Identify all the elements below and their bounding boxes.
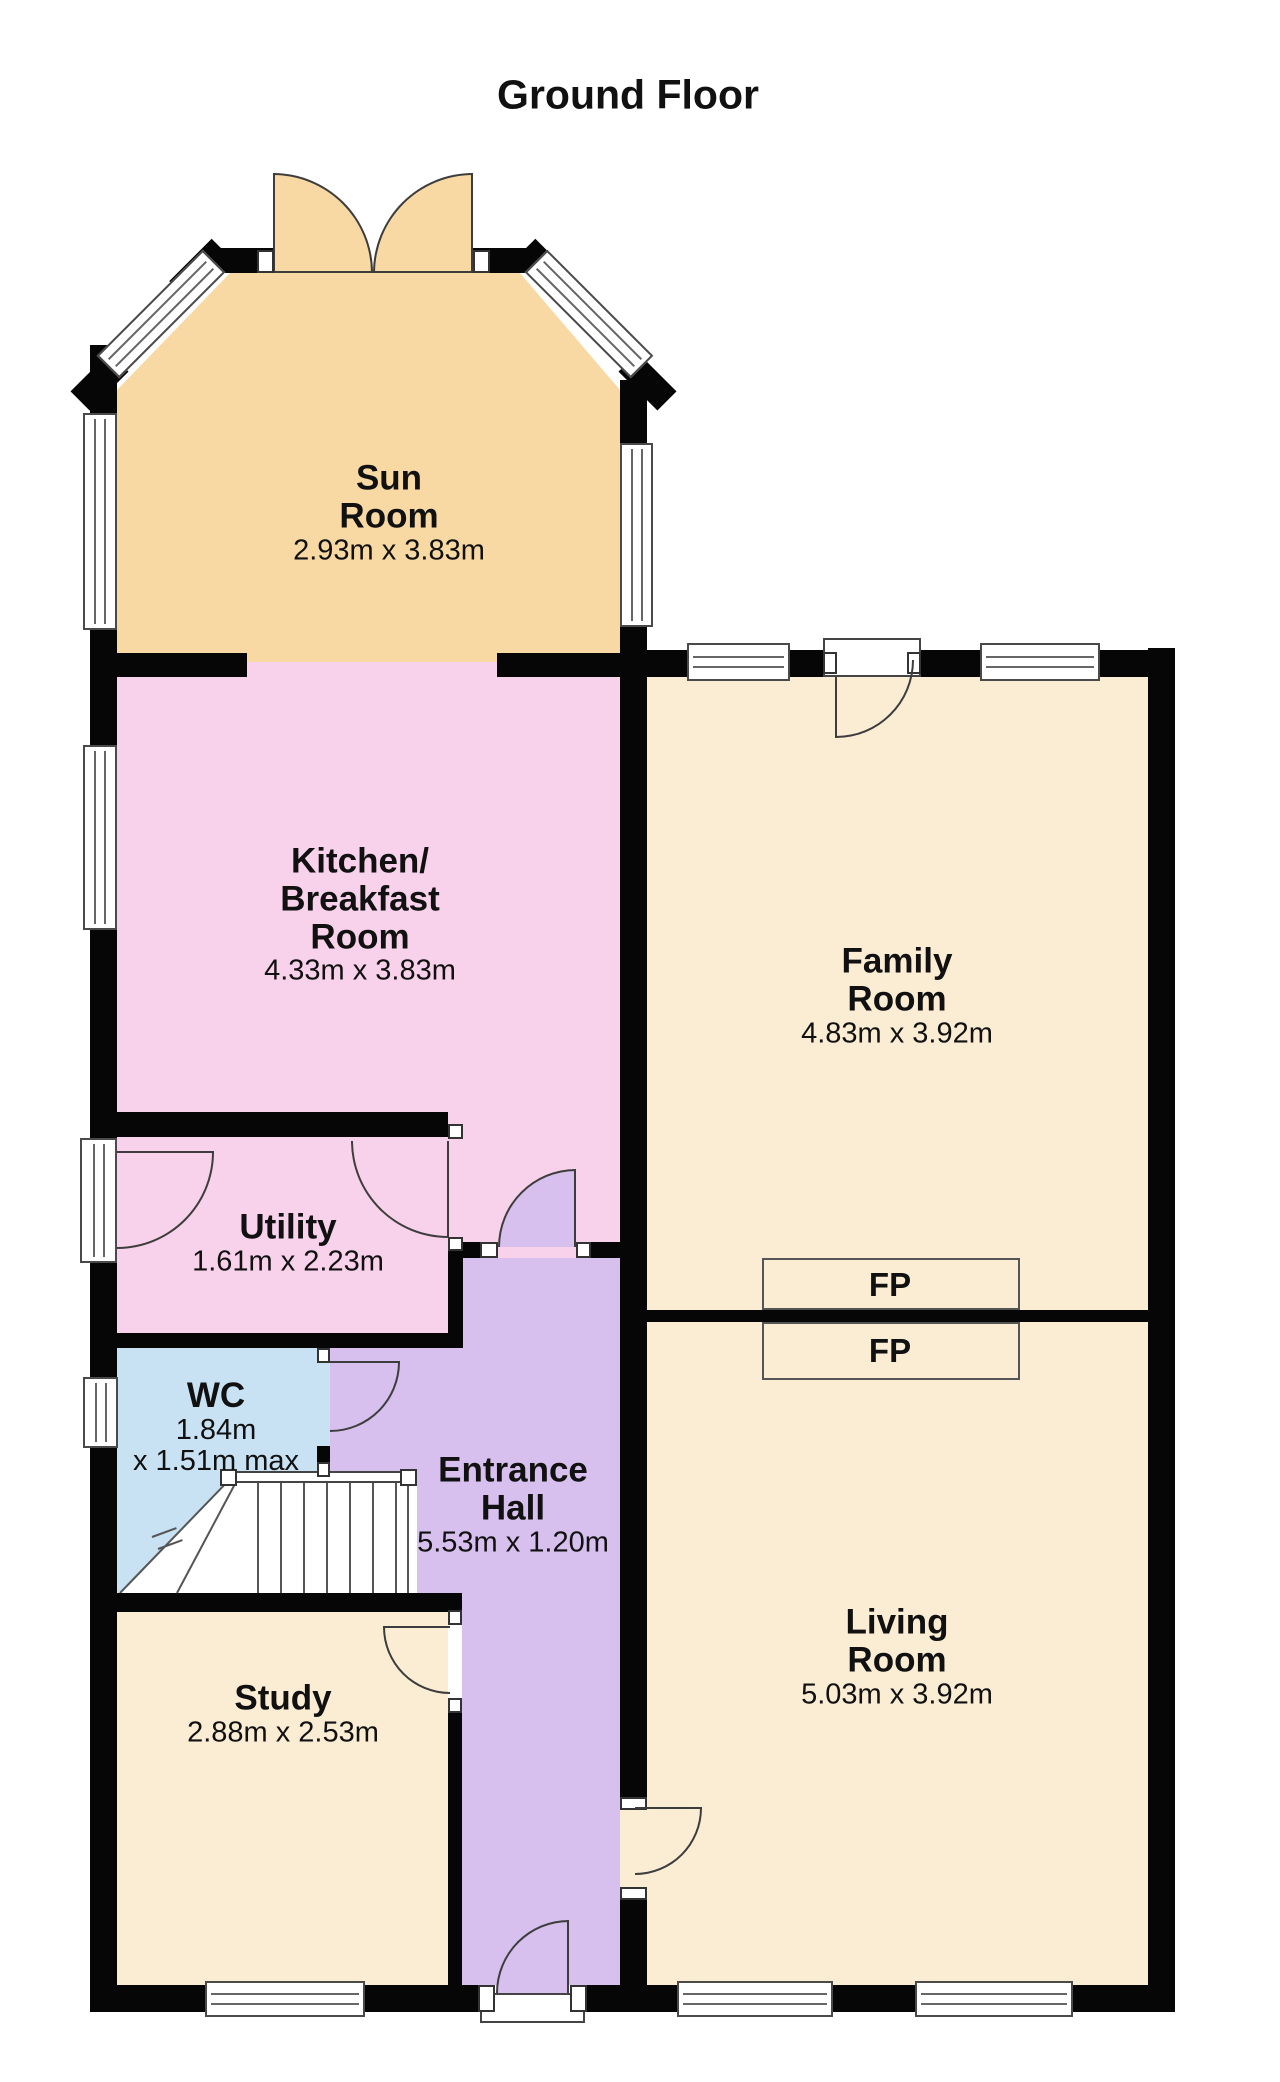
window-glass <box>986 656 1094 668</box>
window-glass <box>693 656 784 668</box>
door-frame <box>317 1348 330 1363</box>
door-frame <box>473 250 490 273</box>
french-door-left-leaf <box>273 173 373 273</box>
room-label-kitchen: Kitchen/ Breakfast Room 4.33m x 3.83m <box>264 843 456 988</box>
door-frame <box>576 1242 591 1258</box>
room-label-sun: Sun Room 2.93m x 3.83m <box>293 460 485 567</box>
door-leaf <box>574 1169 576 1247</box>
wall-segment <box>1073 1985 1175 2012</box>
room-dimensions: 5.53m x 1.20m <box>417 1527 609 1558</box>
window-glass <box>921 1993 1067 2005</box>
window <box>205 1981 365 2017</box>
wall-segment <box>620 380 647 443</box>
window <box>83 413 117 630</box>
wall-segment <box>90 1263 117 1377</box>
door-frame <box>317 1462 330 1477</box>
wall-segment <box>921 650 980 677</box>
wall-segment <box>497 653 620 677</box>
door-leaf <box>567 1920 569 1993</box>
room-label-study: Study 2.88m x 2.53m <box>187 1679 379 1748</box>
wall-segment <box>90 1448 117 1593</box>
wall-segment <box>590 1242 620 1258</box>
room-hall-upper <box>463 1258 620 1348</box>
room-name: Room <box>293 497 485 535</box>
door-frame <box>823 652 837 674</box>
stair-tread <box>395 1477 397 1593</box>
room-label-wc: WC 1.84m x 1.51m max <box>133 1377 299 1477</box>
room-name: Room <box>801 980 993 1018</box>
door-frame <box>478 1985 495 2012</box>
room-label-utility: Utility 1.61m x 2.23m <box>192 1208 384 1277</box>
room-name: Kitchen/ <box>264 843 456 881</box>
fireplace-label: FP <box>869 1266 911 1304</box>
door-frame <box>448 1237 463 1251</box>
room-dimensions: 2.93m x 3.83m <box>293 535 485 566</box>
room-name: Entrance <box>417 1452 609 1490</box>
stair-tread <box>407 1477 409 1593</box>
door-frame <box>448 1610 462 1625</box>
room-name: Breakfast <box>264 880 456 918</box>
room-label-hall: Entrance Hall 5.53m x 1.20m <box>417 1452 609 1559</box>
wall-segment <box>90 627 117 747</box>
room-label-family: Family Room 4.83m x 3.92m <box>801 943 993 1050</box>
room-label-living: Living Room 5.03m x 3.92m <box>801 1604 993 1711</box>
window-glass <box>94 419 106 624</box>
wall-segment <box>90 1593 117 2012</box>
page-title: Ground Floor <box>497 72 759 119</box>
floor-plan: Ground Floor <box>0 0 1280 2082</box>
stair-tread <box>280 1477 282 1593</box>
wall-segment <box>90 1112 448 1137</box>
window <box>83 745 117 930</box>
wall-segment <box>90 1333 463 1348</box>
wall-segment <box>620 1900 647 1985</box>
door-frame <box>448 1124 463 1139</box>
room-name: WC <box>133 1377 299 1415</box>
french-door-right-leaf <box>373 173 473 273</box>
wall-segment <box>1148 648 1175 2012</box>
room-dimensions: 4.33m x 3.83m <box>264 956 456 987</box>
room-name: Sun <box>293 460 485 498</box>
door-leaf <box>330 1361 400 1363</box>
room-name: Study <box>187 1679 379 1717</box>
wall-segment <box>90 1985 205 2012</box>
window-glass <box>95 1383 107 1442</box>
room-name: Utility <box>192 1208 384 1246</box>
wall-segment <box>620 627 647 1797</box>
wall-segment <box>317 1446 330 1462</box>
window-glass <box>211 1993 359 2005</box>
fireplace-label: FP <box>869 1332 911 1370</box>
window <box>677 1981 833 2017</box>
stair-tread <box>303 1477 305 1593</box>
room-name: Hall <box>417 1489 609 1527</box>
wall-segment <box>647 650 687 677</box>
window-glass <box>683 1993 827 2005</box>
wall-segment <box>790 650 823 677</box>
door-glass <box>93 1144 105 1257</box>
wall-segment <box>448 1712 462 1985</box>
room-name: Room <box>801 1641 993 1679</box>
wall-segment <box>90 1593 462 1612</box>
wall-segment <box>365 1985 480 2012</box>
room-dimensions: x 1.51m max <box>133 1446 299 1477</box>
door-frame <box>257 250 274 273</box>
room-name: Room <box>264 918 456 956</box>
door-frame <box>620 1887 647 1900</box>
wall-segment <box>90 930 117 1138</box>
window <box>915 1981 1073 2017</box>
stair-tread <box>326 1477 328 1593</box>
room-name: Family <box>801 943 993 981</box>
door-frame <box>480 1242 498 1258</box>
room-dimensions: 4.83m x 3.92m <box>801 1018 993 1049</box>
room-dimensions: 2.88m x 2.53m <box>187 1717 379 1748</box>
room-name: Living <box>801 1604 993 1642</box>
window <box>620 443 653 627</box>
door-frame <box>570 1985 587 2012</box>
wall-segment <box>585 1985 677 2012</box>
wall-segment <box>635 1310 1148 1322</box>
stair-tread <box>372 1477 374 1593</box>
window <box>83 1377 118 1448</box>
window-glass <box>631 449 643 621</box>
door-frame <box>448 1698 462 1713</box>
room-dimensions: 5.03m x 3.92m <box>801 1679 993 1710</box>
wall-segment <box>463 1242 480 1258</box>
stair-rail-end <box>400 1469 417 1486</box>
wall-segment <box>117 653 247 677</box>
window <box>687 643 790 681</box>
room-dimensions: 1.61m x 2.23m <box>192 1246 384 1277</box>
back-door <box>80 1138 117 1263</box>
window <box>980 643 1100 681</box>
window-glass <box>94 751 106 924</box>
stair-tread <box>349 1477 351 1593</box>
stair-tread <box>257 1477 259 1593</box>
wall-segment <box>833 1985 915 2012</box>
room-dimensions: 1.84m <box>133 1415 299 1446</box>
